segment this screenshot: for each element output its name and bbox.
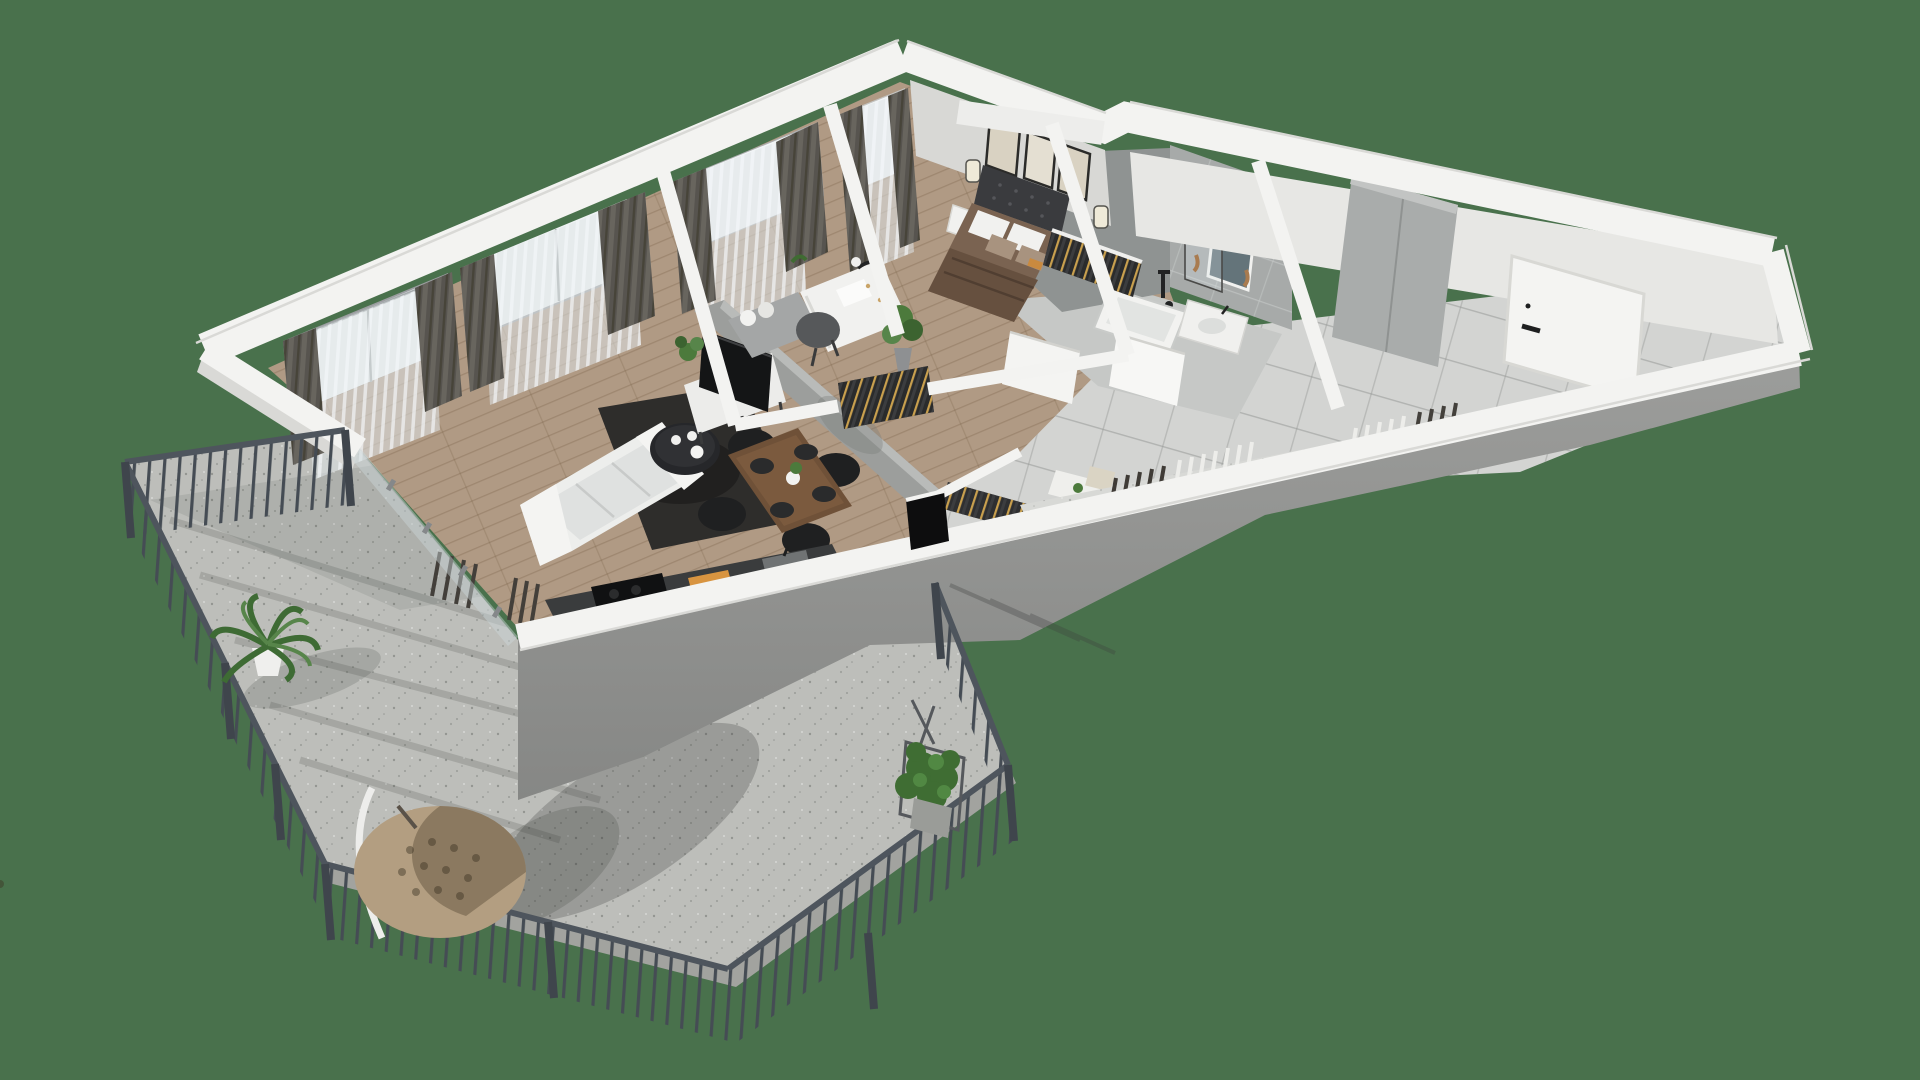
burner-2 bbox=[631, 585, 641, 595]
curtain-2-right bbox=[598, 192, 655, 335]
floor-plan-render bbox=[0, 0, 1920, 1080]
place-mat-1 bbox=[750, 458, 774, 474]
daybed-pillow-1 bbox=[740, 310, 756, 326]
place-mat-2 bbox=[794, 444, 818, 460]
coffee-table-top bbox=[655, 425, 715, 467]
burner-1 bbox=[609, 589, 619, 599]
daybed-pillow-2 bbox=[758, 302, 774, 318]
teapot bbox=[691, 446, 704, 459]
cup-1 bbox=[671, 435, 681, 445]
desk-lamp-globe bbox=[851, 257, 861, 267]
drawer-knob-1 bbox=[866, 284, 870, 288]
place-mat-4 bbox=[812, 486, 836, 502]
entrance-door-lock bbox=[1526, 304, 1531, 309]
table-plant bbox=[790, 462, 802, 474]
scene-canvas bbox=[0, 0, 1920, 1080]
shelf-plant bbox=[1073, 483, 1083, 493]
place-mat-3 bbox=[770, 502, 794, 518]
cup-2 bbox=[687, 431, 697, 441]
dining-chair-3 bbox=[698, 497, 746, 531]
vanity-sink bbox=[1198, 318, 1226, 334]
